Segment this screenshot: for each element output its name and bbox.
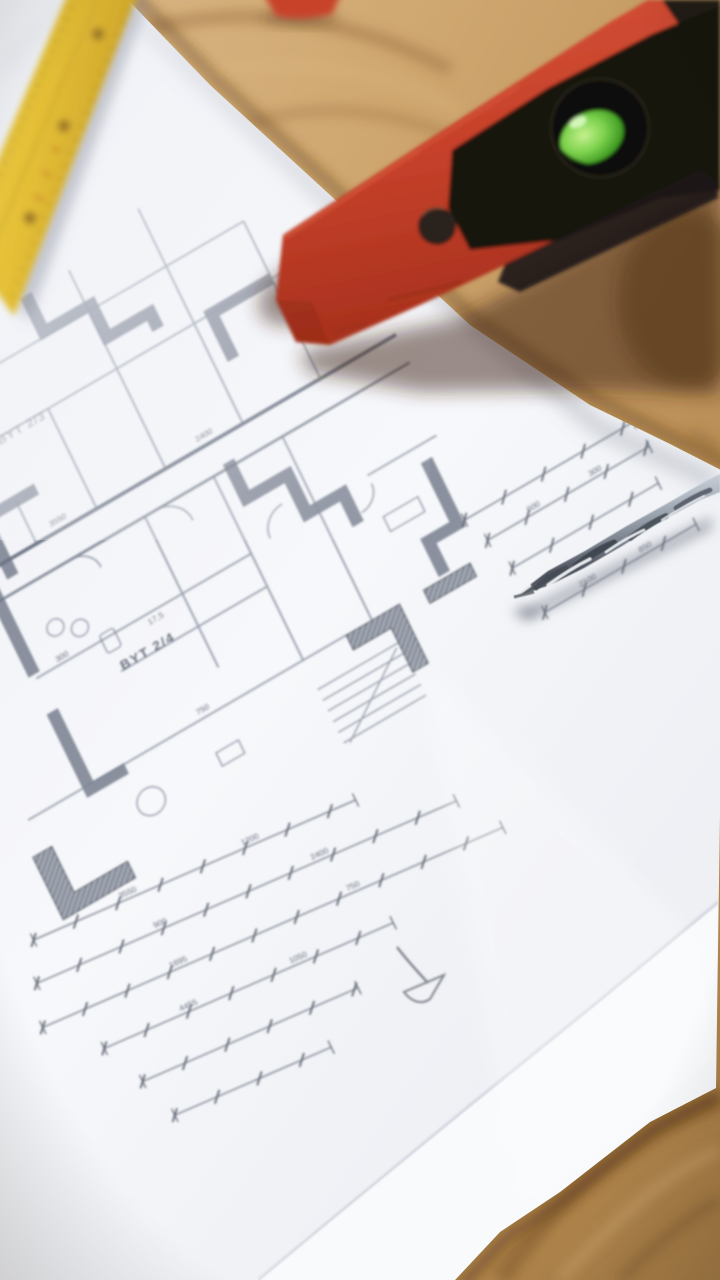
photo-canvas: BYT 2/4 17,5 BYT 2/3 3550 2400 750 300 6…: [0, 0, 720, 1280]
vignette: [0, 0, 720, 1280]
